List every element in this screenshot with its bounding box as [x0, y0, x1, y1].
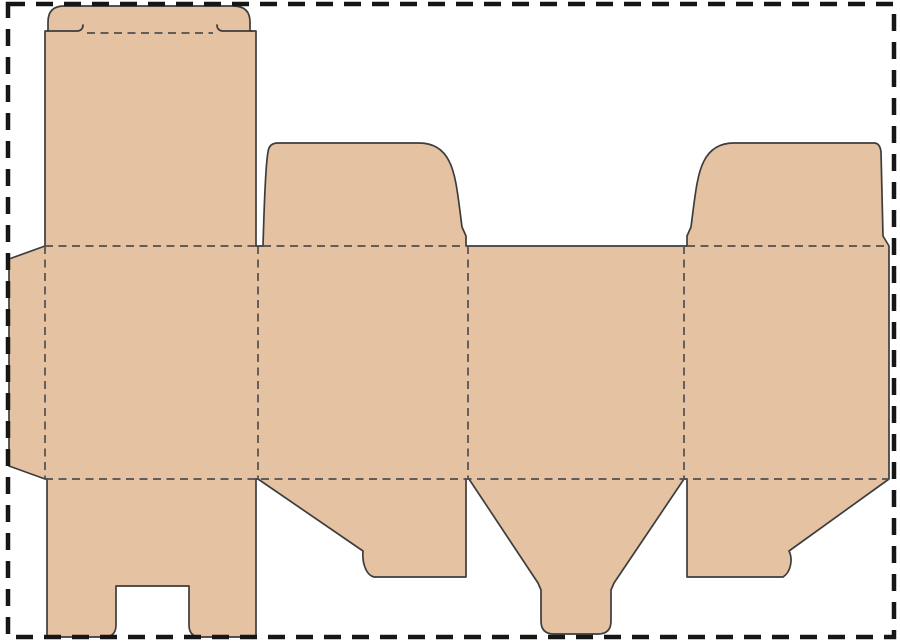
- dieline-svg: [0, 0, 900, 643]
- dieline-page: [0, 0, 900, 643]
- carton-blank-group: [9, 6, 889, 637]
- carton-blank-outline: [9, 6, 889, 637]
